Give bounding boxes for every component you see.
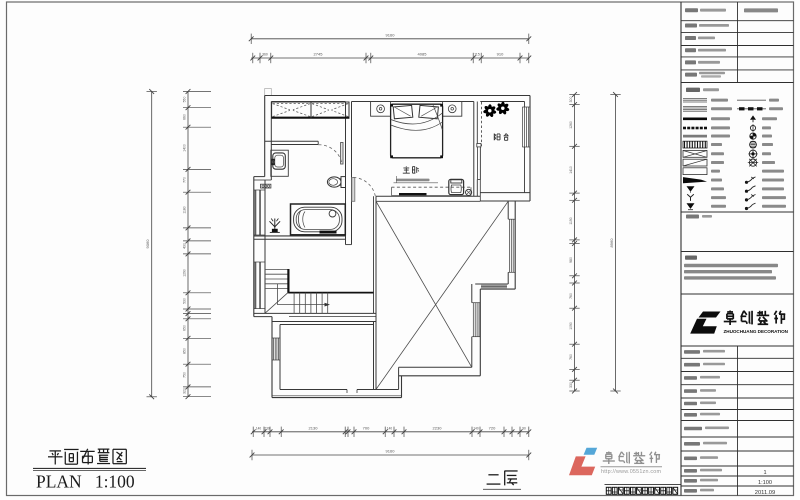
- svg-text:1400: 1400: [182, 144, 186, 152]
- svg-text:360: 360: [262, 53, 268, 57]
- svg-text:9160: 9160: [386, 33, 396, 38]
- svg-text:2745: 2745: [314, 52, 324, 57]
- svg-text:750: 750: [182, 372, 186, 378]
- svg-text:140: 140: [387, 426, 393, 430]
- svg-text:90: 90: [522, 426, 526, 430]
- svg-text:9060: 9060: [145, 239, 150, 249]
- svg-text:760: 760: [569, 354, 573, 360]
- svg-text:300: 300: [569, 97, 573, 103]
- svg-text:2230: 2230: [433, 425, 443, 430]
- svg-text:115: 115: [474, 53, 480, 57]
- svg-text:9160: 9160: [386, 449, 396, 454]
- svg-text:850: 850: [182, 348, 186, 354]
- svg-text:140: 140: [473, 426, 479, 430]
- svg-text:http://www.0551zn.com: http://www.0551zn.com: [601, 469, 662, 475]
- svg-text:550: 550: [182, 97, 186, 103]
- svg-text:140: 140: [256, 426, 262, 430]
- svg-text:430: 430: [182, 243, 186, 249]
- svg-text:8960: 8960: [609, 238, 614, 248]
- svg-text:1290: 1290: [182, 269, 186, 277]
- svg-text:980: 980: [569, 257, 573, 263]
- svg-text:650: 650: [182, 325, 186, 331]
- svg-text:530: 530: [182, 298, 186, 304]
- svg-text:2130: 2130: [309, 425, 319, 430]
- svg-text:770: 770: [182, 177, 186, 183]
- svg-text:1: 1: [763, 470, 766, 476]
- svg-text:2011.09: 2011.09: [755, 490, 776, 496]
- svg-text:760: 760: [569, 293, 573, 299]
- svg-text:230: 230: [264, 426, 270, 430]
- svg-text:330: 330: [569, 382, 573, 388]
- svg-text:910: 910: [497, 52, 504, 57]
- svg-text:1410: 1410: [569, 166, 573, 174]
- svg-text:PLAN 1:100: PLAN 1:100: [36, 472, 135, 492]
- svg-text:320: 320: [182, 388, 186, 394]
- svg-text:720: 720: [489, 425, 496, 430]
- svg-text:ZHUOCHUANG DECORATION: ZHUOCHUANG DECORATION: [724, 329, 789, 334]
- svg-text:1:100: 1:100: [758, 480, 772, 486]
- svg-text:700: 700: [363, 425, 370, 430]
- svg-text:1180: 1180: [182, 206, 186, 213]
- svg-text:660: 660: [182, 114, 186, 120]
- svg-text:1190: 1190: [569, 217, 573, 224]
- svg-text:4085: 4085: [418, 52, 428, 57]
- svg-text:1260: 1260: [569, 121, 573, 129]
- svg-text:1090: 1090: [569, 322, 573, 330]
